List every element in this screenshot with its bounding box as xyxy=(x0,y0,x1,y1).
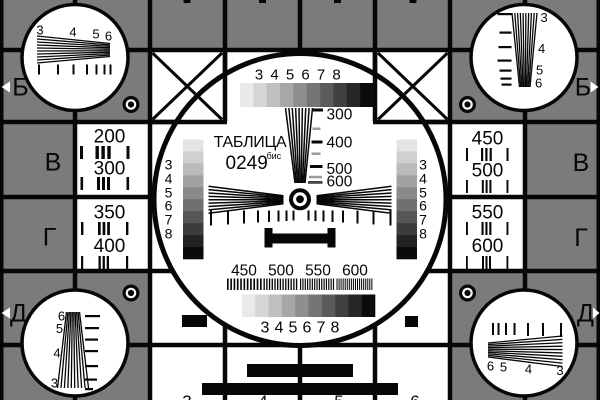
bullseye-mark xyxy=(124,98,138,112)
burst-stripe xyxy=(371,279,372,291)
grayscale-step xyxy=(255,295,269,318)
resolution-tick xyxy=(466,256,468,269)
staircase-step xyxy=(183,211,204,223)
grayscale-step xyxy=(362,295,376,318)
resolution-tick xyxy=(466,222,468,235)
staircase-step xyxy=(397,151,418,163)
burst-label: 500 xyxy=(268,263,294,280)
wedge-label: 3 xyxy=(51,376,58,391)
resolution-tick xyxy=(489,256,491,269)
card-code-superscript: бис xyxy=(267,151,282,161)
wedge-label: 6 xyxy=(105,29,112,44)
resolution-tick xyxy=(98,222,101,235)
grayscale-step xyxy=(269,295,283,318)
burst-stripe xyxy=(357,279,358,291)
scale-label: 5 xyxy=(286,67,294,84)
grayscale-step xyxy=(348,295,362,318)
tick-mark xyxy=(257,211,259,223)
resolution-tick xyxy=(96,146,99,159)
resolution-tick xyxy=(81,177,84,190)
edge-letter: Д xyxy=(10,300,27,328)
grayscale-step xyxy=(335,295,349,318)
tick-mark xyxy=(38,65,40,75)
cut-digit: 5 xyxy=(334,392,343,400)
tick-mark xyxy=(85,365,98,367)
grayscale-step xyxy=(307,83,321,107)
resolution-tick xyxy=(107,256,109,269)
bullseye-dot xyxy=(464,290,470,296)
tick-mark xyxy=(500,32,512,34)
burst-stripe xyxy=(365,279,366,291)
tick-mark xyxy=(498,60,512,62)
resolution-tick xyxy=(101,146,104,159)
scale-label: 5 xyxy=(289,320,298,337)
burst-stripe xyxy=(253,279,255,291)
scale-dash xyxy=(313,128,321,131)
resolution-tick xyxy=(489,180,491,193)
edge-letter: Г xyxy=(574,224,588,252)
scale-dash xyxy=(312,141,323,144)
resolution-tick xyxy=(482,222,484,235)
staircase-step xyxy=(397,199,418,211)
cut-digit: 6 xyxy=(410,392,419,400)
resolution-tick xyxy=(127,177,130,190)
resolution-tick xyxy=(507,222,509,235)
scale-label: 7 xyxy=(317,320,326,337)
edge-letter: В xyxy=(45,149,62,177)
burst-stripe xyxy=(257,279,259,291)
tick-mark xyxy=(514,323,516,335)
wedge-line xyxy=(299,108,300,183)
burst-stripe xyxy=(353,279,354,291)
wedge-scale-label: 300 xyxy=(327,107,353,124)
tick-mark xyxy=(500,70,512,72)
tick-mark xyxy=(492,323,494,335)
bullseye-mark xyxy=(461,286,475,300)
burst-stripe xyxy=(280,279,281,291)
burst-label: 600 xyxy=(342,263,368,280)
wedge-label: 4 xyxy=(69,25,76,40)
resolution-value: 400 xyxy=(94,236,126,257)
grayscale-step xyxy=(295,295,309,318)
burst-stripe xyxy=(300,279,301,291)
wedge-scale-label: 600 xyxy=(327,174,353,191)
tick-mark xyxy=(104,65,106,75)
staircase-step xyxy=(397,140,418,152)
resolution-tick xyxy=(107,146,110,159)
burst-stripe xyxy=(369,279,370,291)
burst-stripe xyxy=(359,279,360,291)
burst-stripe xyxy=(309,279,310,291)
tick-mark xyxy=(85,350,98,352)
tick-mark xyxy=(268,211,270,223)
staircase-step xyxy=(397,235,418,247)
resolution-tick xyxy=(486,180,488,193)
tick-mark xyxy=(73,65,75,75)
burst-stripe xyxy=(240,279,242,291)
staircase-step xyxy=(183,151,204,163)
tick-mark xyxy=(542,323,544,336)
resolution-tick xyxy=(103,222,106,235)
burst-stripe xyxy=(272,279,273,291)
grid-line-v xyxy=(597,0,600,400)
tick-mark xyxy=(502,84,512,86)
scale-dash xyxy=(309,176,322,179)
resolution-tick xyxy=(481,148,483,161)
burst-stripe xyxy=(331,279,332,291)
staircase-step xyxy=(183,199,204,211)
staircase-step xyxy=(397,223,418,235)
scale-label: 6 xyxy=(301,67,309,84)
staircase-step xyxy=(183,187,204,199)
burst-stripe xyxy=(302,279,303,291)
bar-body xyxy=(265,234,336,244)
burst-stripe xyxy=(237,279,239,291)
stair-label: 8 xyxy=(165,226,173,242)
burst-stripe xyxy=(244,279,246,291)
resolution-value: 350 xyxy=(94,203,126,224)
card-title: ТАБЛИЦА xyxy=(214,134,287,151)
anchor-rect-left xyxy=(182,315,207,327)
tick-mark xyxy=(293,211,295,221)
scale-dash xyxy=(310,165,323,168)
tick-mark xyxy=(498,323,500,335)
burst-stripe xyxy=(293,279,294,291)
resolution-value: 550 xyxy=(472,203,504,224)
staircase-step xyxy=(183,247,204,259)
tick-mark xyxy=(85,379,97,381)
tick-mark xyxy=(308,211,310,221)
digit-stub xyxy=(184,0,191,3)
scale-label: 3 xyxy=(261,320,270,337)
edge-letter: Д xyxy=(577,300,594,328)
resolution-tick xyxy=(485,148,487,161)
tick-mark xyxy=(286,211,288,222)
staircase-step xyxy=(397,211,418,223)
bullseye-mark xyxy=(124,286,138,300)
scale-dash xyxy=(312,109,323,112)
wedge-label: 6 xyxy=(487,359,494,374)
edge-letter: Б xyxy=(575,74,591,102)
resolution-tick xyxy=(466,180,468,193)
scale-label: 8 xyxy=(331,320,340,337)
resolution-value: 450 xyxy=(472,129,504,150)
burst-stripe xyxy=(328,279,329,291)
tick-mark xyxy=(96,65,98,75)
bullseye-dot xyxy=(464,101,470,107)
burst-stripe xyxy=(282,279,283,291)
resolution-tick xyxy=(490,148,492,161)
staircase-step xyxy=(183,235,204,247)
resolution-tick xyxy=(507,256,509,269)
tick-mark xyxy=(527,323,529,336)
wedge-line xyxy=(525,13,526,87)
tick-mark xyxy=(85,315,100,317)
edge-letter: Б xyxy=(12,74,28,102)
left-staircase-labels: 3 4 5 6 7 8 xyxy=(165,157,173,242)
resolution-tick xyxy=(107,177,110,190)
bottom-bar-lower xyxy=(202,383,398,395)
right-grayscale-staircase xyxy=(397,140,418,260)
tv-test-card: 3 4 5 6 3 4 5 6 6 5 4 3 6 5 4 3 xyxy=(0,0,600,400)
bullseye-dot xyxy=(128,290,134,296)
cut-digit: 4 xyxy=(258,392,267,400)
grayscale-step xyxy=(253,83,267,107)
card-code: 0249 xyxy=(226,153,268,174)
tick-mark xyxy=(278,211,280,222)
burst-stripe xyxy=(269,279,270,291)
resolution-tick xyxy=(81,256,83,269)
test-card-canvas: 3 4 5 6 3 4 5 6 6 5 4 3 6 5 4 3 xyxy=(0,0,600,400)
wedge-label: 4 xyxy=(53,346,60,361)
burst-stripe xyxy=(264,279,265,291)
tick-mark xyxy=(357,211,359,224)
scale-label: 4 xyxy=(275,320,284,337)
burst-stripe xyxy=(288,279,289,291)
burst-stripe xyxy=(324,279,325,291)
resolution-tick xyxy=(482,180,484,193)
tick-mark xyxy=(505,323,507,335)
tick-mark xyxy=(110,65,112,75)
tick-mark xyxy=(498,13,512,15)
burst-stripe xyxy=(250,279,252,291)
bottom-grayscale-bar xyxy=(242,295,375,318)
wedge-label: 5 xyxy=(92,27,99,42)
cell-border xyxy=(223,50,228,122)
tick-mark xyxy=(499,46,512,48)
tick-mark xyxy=(373,211,375,225)
grayscale-step xyxy=(280,83,294,107)
burst-stripe xyxy=(347,279,348,291)
grayscale-step xyxy=(347,83,361,107)
wedge-label: 3 xyxy=(556,363,563,378)
edge-letter: Г xyxy=(43,224,57,252)
burst-stripe xyxy=(274,279,275,291)
resolution-tick xyxy=(126,222,128,235)
grayscale-step xyxy=(309,295,323,318)
wedge-label: 5 xyxy=(56,321,63,336)
wedge-label: 3 xyxy=(36,23,43,38)
resolution-value: 600 xyxy=(472,236,504,257)
resolution-tick xyxy=(486,256,488,269)
grayscale-step xyxy=(242,295,256,318)
burst-stripe xyxy=(321,279,322,291)
cut-digit: 3 xyxy=(182,392,191,400)
resolution-tick xyxy=(489,222,491,235)
resolution-value: 200 xyxy=(94,127,126,148)
tick-mark xyxy=(210,211,212,226)
resolution-tick xyxy=(97,177,100,190)
burst-stripe xyxy=(343,279,344,291)
resolution-tick xyxy=(80,146,83,159)
scale-label: 4 xyxy=(270,67,278,84)
burst-stripe xyxy=(316,279,317,291)
burst-stripe xyxy=(355,279,356,291)
wedge-scale-labels: 300 400 500 600 xyxy=(327,107,353,191)
burst-stripe xyxy=(307,279,308,291)
grayscale-step xyxy=(267,83,281,107)
wedge-scale-label: 400 xyxy=(327,135,353,152)
burst-label: 550 xyxy=(305,263,331,280)
resolution-tick xyxy=(507,180,509,193)
resolution-tick xyxy=(485,222,487,235)
resolution-tick xyxy=(107,222,110,235)
resolution-value: 500 xyxy=(472,161,504,182)
tick-mark xyxy=(85,388,93,390)
staircase-step xyxy=(397,247,418,259)
resolution-tick xyxy=(482,256,484,269)
wedge-label: 4 xyxy=(525,362,532,377)
resolution-tick xyxy=(81,222,83,235)
burst-stripe xyxy=(363,279,364,291)
burst-stripe xyxy=(367,279,368,291)
edge-letter: В xyxy=(573,149,590,177)
tick-mark xyxy=(86,65,88,75)
grid-line-v xyxy=(0,0,4,400)
tick-mark xyxy=(227,211,229,225)
burst-stripe xyxy=(227,279,229,291)
scale-label: 3 xyxy=(255,67,263,84)
resolution-tick xyxy=(102,177,105,190)
bullseye-mark xyxy=(461,98,475,112)
staircase-step xyxy=(397,187,418,199)
grayscale-step xyxy=(282,295,296,318)
staircase-step xyxy=(397,175,418,187)
left-grayscale-staircase xyxy=(183,140,204,260)
scale-label: 6 xyxy=(303,320,312,337)
bullseye-dot xyxy=(128,101,134,107)
burst-stripe xyxy=(341,279,342,291)
burst-stripe xyxy=(266,279,267,291)
burst-stripe xyxy=(312,279,313,291)
staircase-step xyxy=(183,175,204,187)
wedge-label: 3 xyxy=(541,10,548,25)
resolution-tick xyxy=(466,148,468,161)
burst-stripe xyxy=(305,279,306,291)
burst-stripe xyxy=(345,279,346,291)
digit-stub xyxy=(410,0,417,3)
resolution-tick xyxy=(103,256,105,269)
stair-label: 8 xyxy=(419,226,427,242)
resolution-tick xyxy=(507,148,509,161)
tick-mark xyxy=(390,211,392,226)
burst-stripe xyxy=(277,279,278,291)
bottom-bar-upper xyxy=(247,364,353,377)
burst-stripe xyxy=(247,279,249,291)
burst-stripe xyxy=(337,279,338,291)
burst-stripe xyxy=(361,279,362,291)
burst-stripe xyxy=(260,279,262,291)
tick-mark xyxy=(243,211,245,224)
resolution-tick xyxy=(127,146,130,159)
right-staircase-labels: 3 4 5 6 7 8 xyxy=(419,157,427,242)
tick-mark xyxy=(57,65,59,75)
grayscale-step xyxy=(360,83,374,107)
scale-label: 8 xyxy=(332,67,340,84)
bullseye-dot xyxy=(296,195,304,203)
tick-mark xyxy=(85,327,99,329)
grayscale-step xyxy=(240,83,254,107)
burst-stripe xyxy=(349,279,350,291)
grayscale-step xyxy=(293,83,307,107)
staircase-step xyxy=(397,163,418,175)
burst-label: 450 xyxy=(231,263,257,280)
burst-stripe xyxy=(339,279,340,291)
tick-mark xyxy=(315,211,317,222)
burst-stripe xyxy=(319,279,320,291)
wedge-label: 5 xyxy=(500,360,507,375)
burst-stripe xyxy=(285,279,286,291)
tick-mark xyxy=(342,211,344,223)
wedge-label: 6 xyxy=(535,76,542,91)
burst-stripe xyxy=(333,279,334,291)
tick-mark xyxy=(560,323,562,337)
grayscale-step xyxy=(322,295,336,318)
anchor-rect-right xyxy=(405,316,418,327)
burst-stripe xyxy=(234,279,236,291)
staircase-step xyxy=(183,163,204,175)
resolution-value: 300 xyxy=(94,159,126,180)
cell-border xyxy=(373,120,450,125)
resolution-tick xyxy=(99,256,101,269)
digit-stub xyxy=(259,0,266,3)
digit-stub xyxy=(334,0,341,3)
grayscale-step xyxy=(320,83,334,107)
resolution-tick xyxy=(126,256,128,269)
burst-stripe xyxy=(230,279,232,291)
burst-stripe xyxy=(291,279,292,291)
staircase-step xyxy=(183,223,204,235)
tick-mark xyxy=(501,78,512,80)
top-grayscale-bar xyxy=(240,83,374,107)
cell-border xyxy=(150,120,227,125)
burst-stripe xyxy=(314,279,315,291)
tick-mark xyxy=(323,211,325,222)
burst-stripe xyxy=(351,279,352,291)
scale-dash xyxy=(308,181,323,184)
wedge-label: 4 xyxy=(538,41,545,56)
staircase-step xyxy=(183,140,204,152)
burst-stripe xyxy=(296,279,297,291)
tick-mark xyxy=(85,339,98,341)
scale-label: 7 xyxy=(317,67,325,84)
burst-stripe xyxy=(326,279,327,291)
scale-dash xyxy=(312,153,321,156)
grayscale-step xyxy=(333,83,347,107)
tick-mark xyxy=(332,211,334,223)
